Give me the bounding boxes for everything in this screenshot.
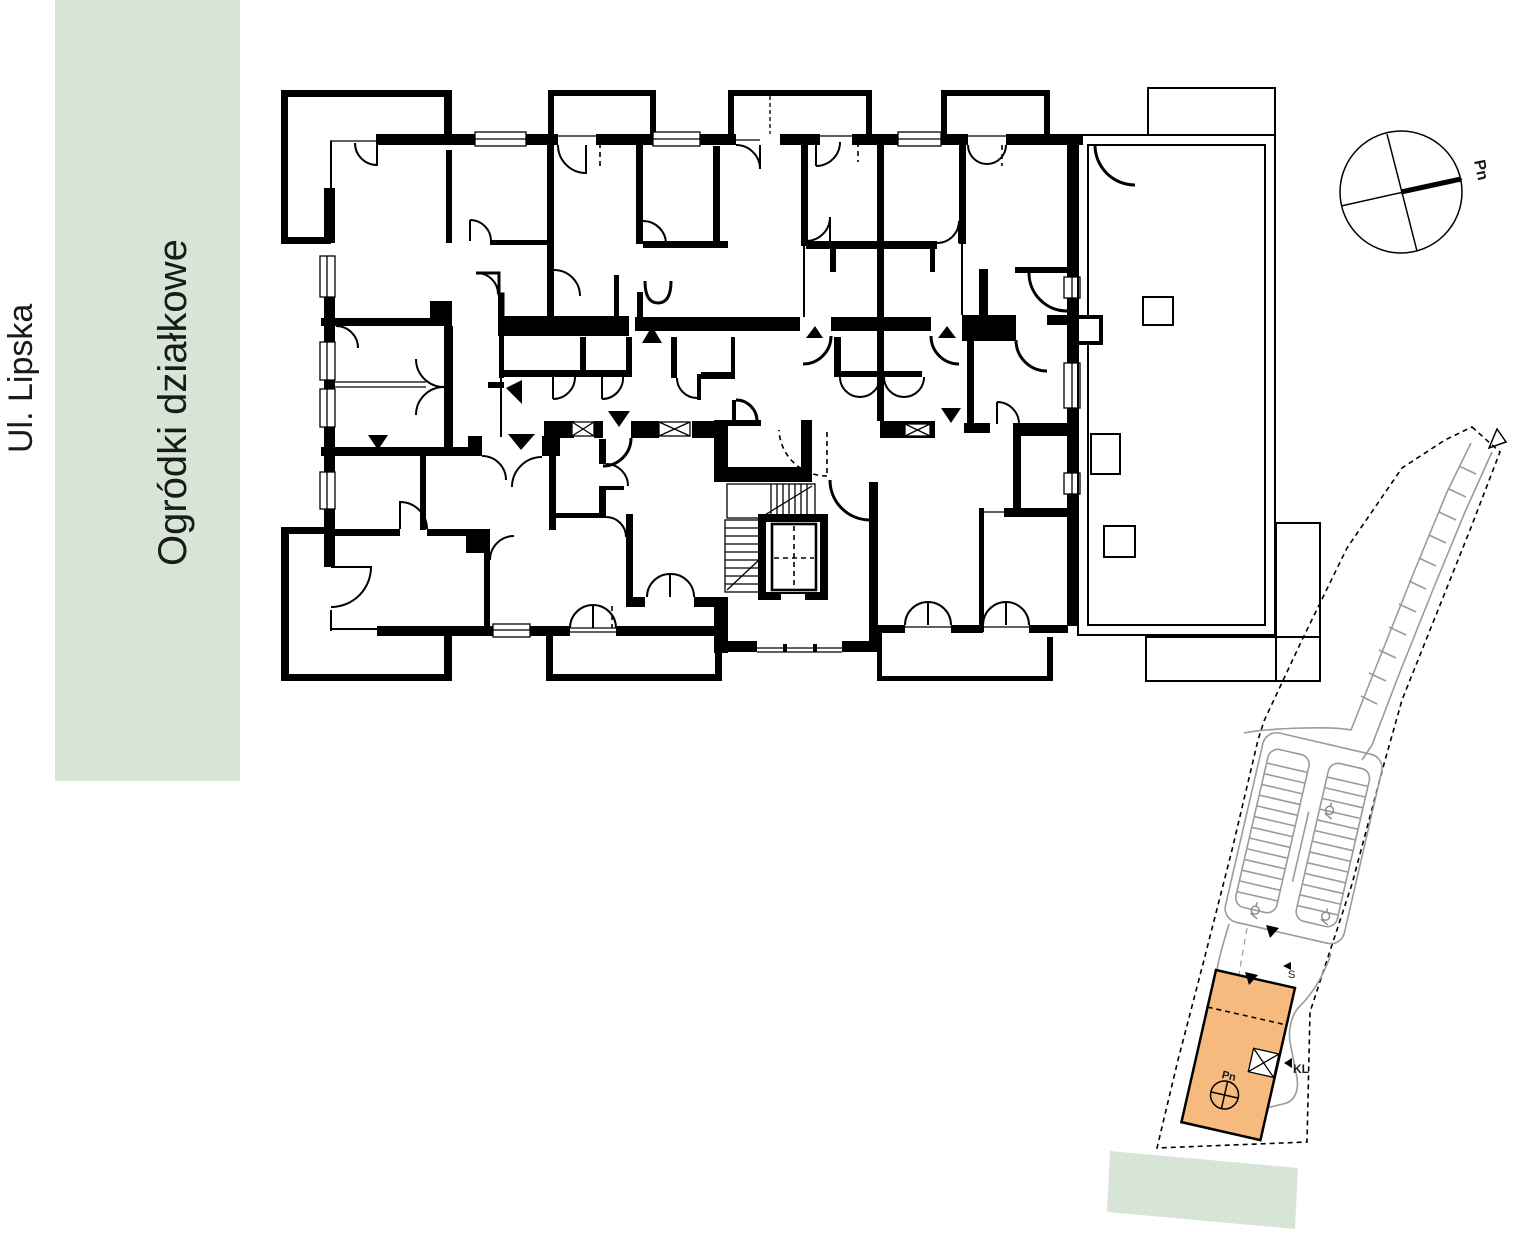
svg-text:KL: KL: [1293, 1062, 1309, 1076]
svg-text:Ogródki działkowe: Ogródki działkowe: [151, 239, 195, 566]
svg-text:S: S: [1288, 969, 1295, 981]
svg-text:Ul. Lipska: Ul. Lipska: [2, 304, 40, 453]
